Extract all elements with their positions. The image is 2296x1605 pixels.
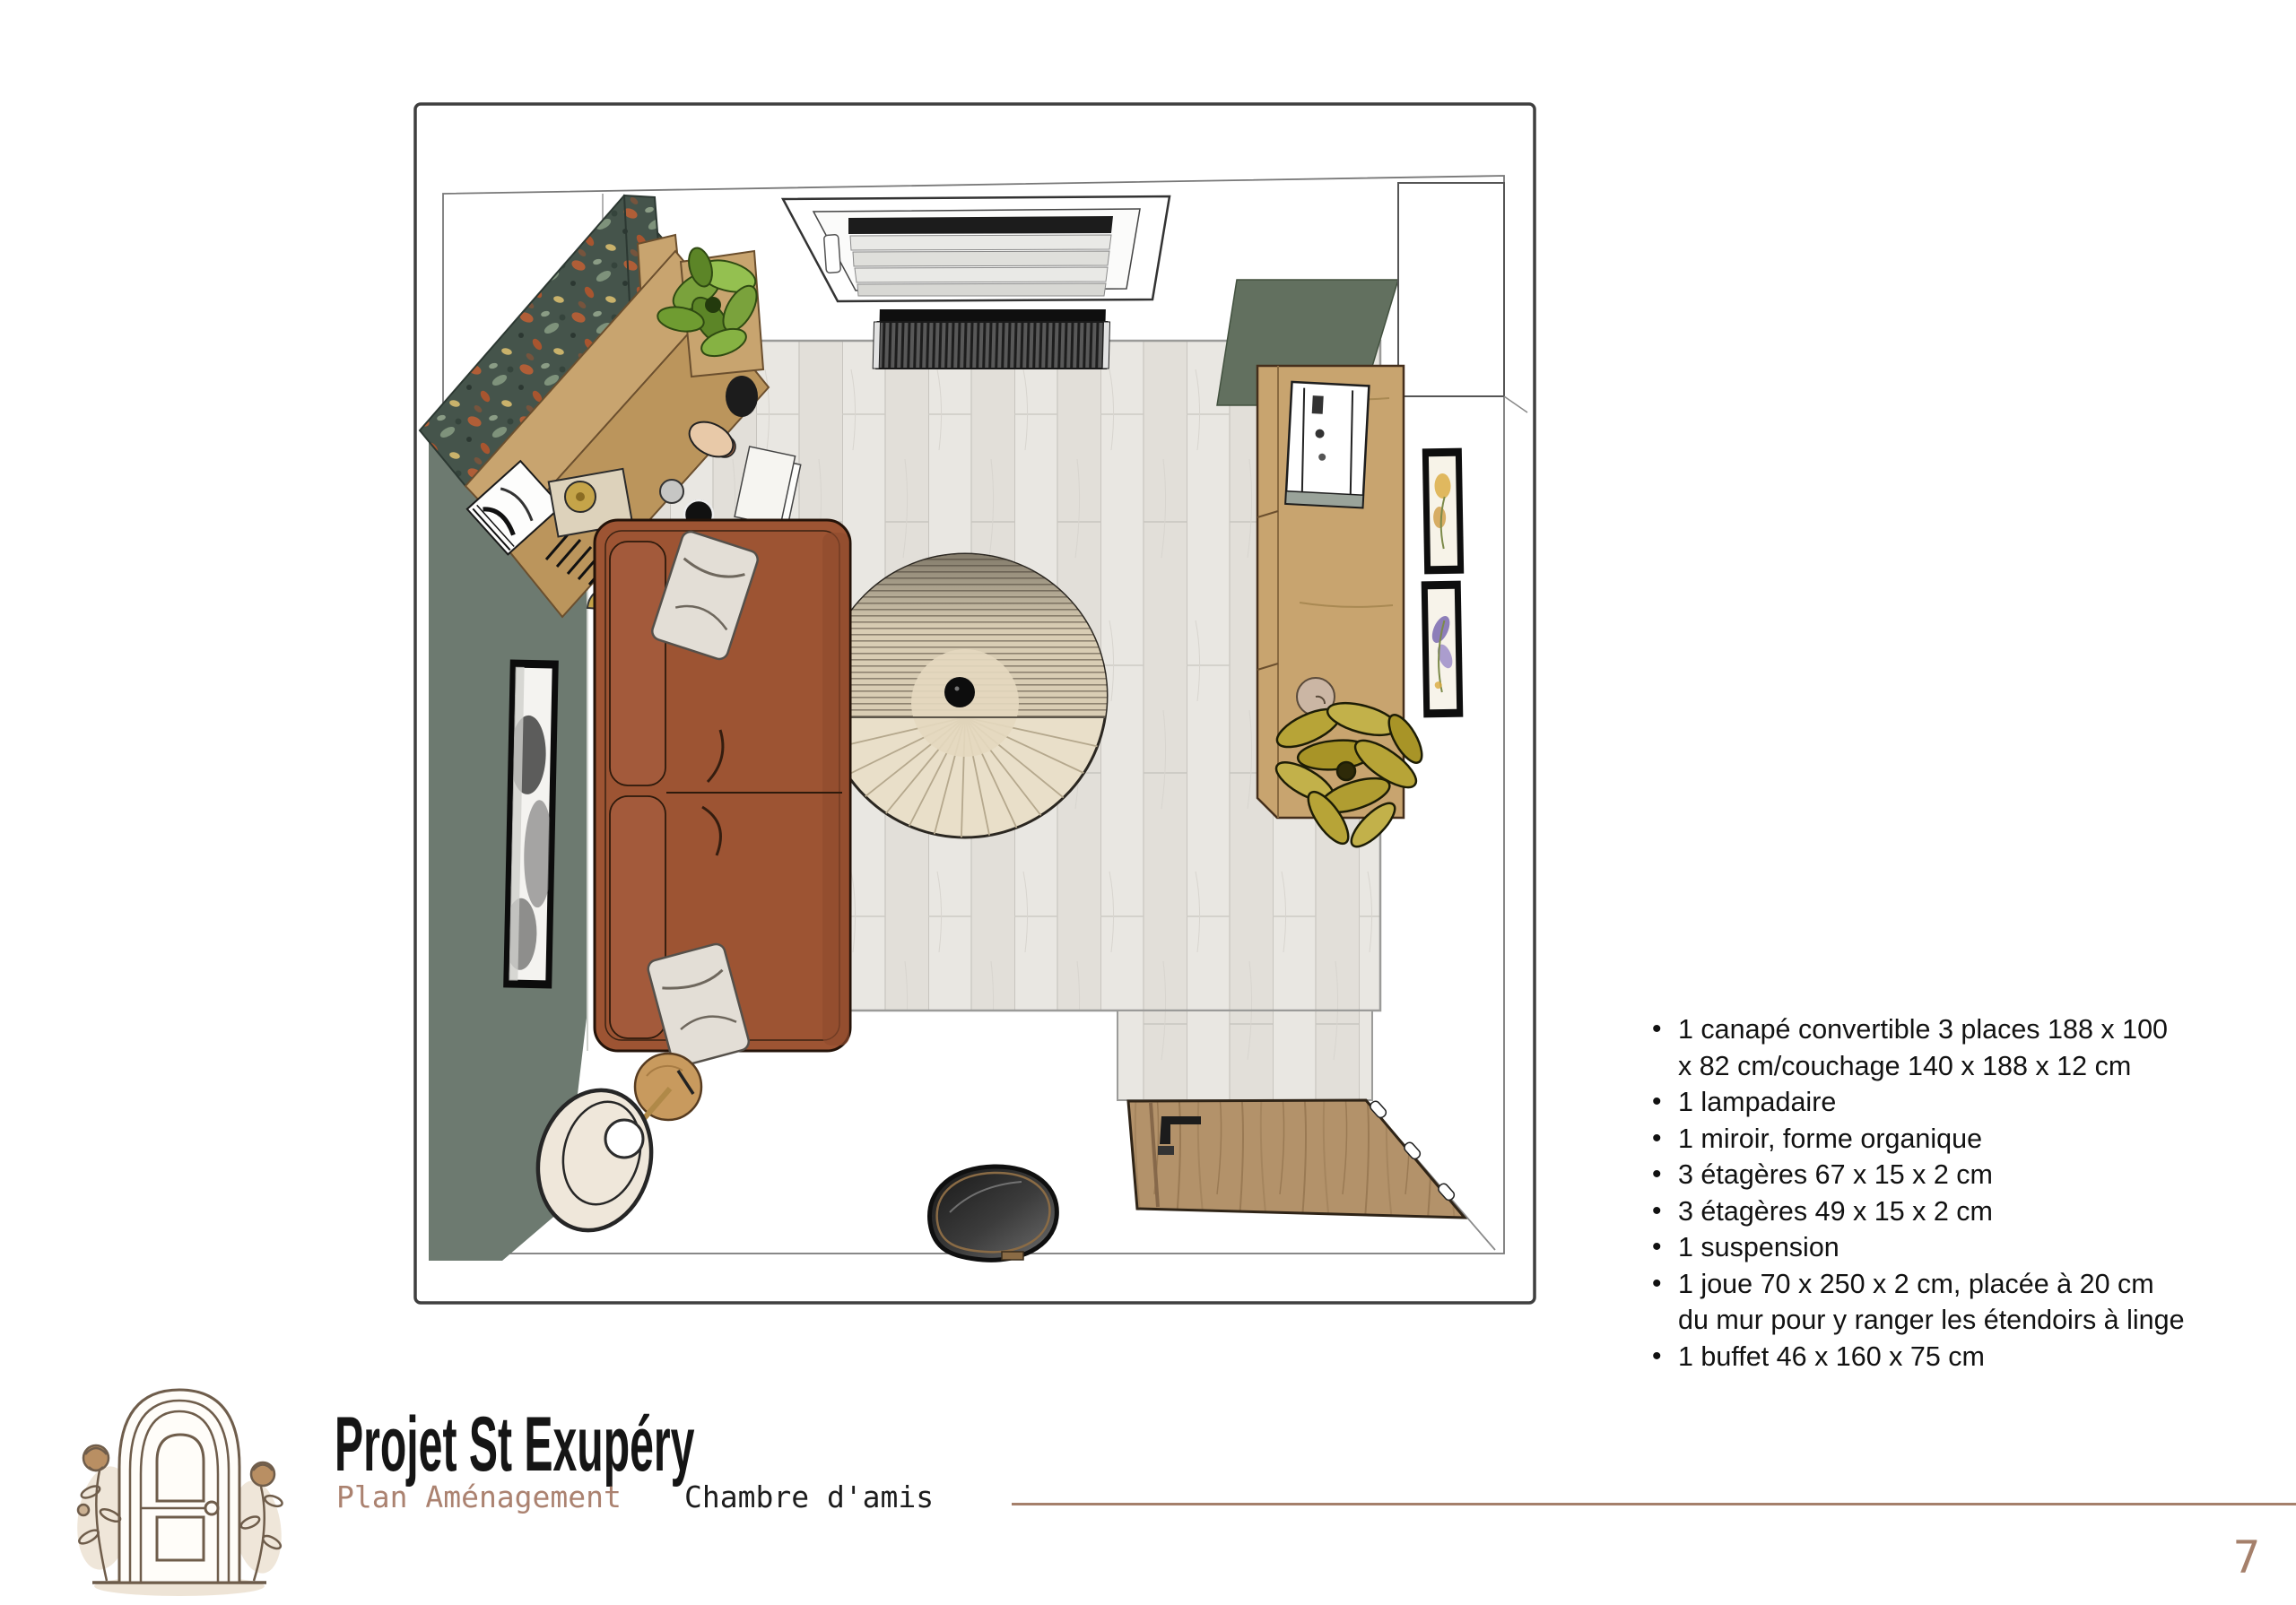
document-type-label: Plan Aménagement — [336, 1479, 622, 1514]
botanical-frame-2 — [1422, 581, 1464, 718]
furniture-list-item: 1 canapé convertible 3 places 188 x 100 … — [1650, 1011, 2188, 1084]
floor-plan-svg — [412, 100, 1538, 1306]
project-title: Projet St Exupéry — [335, 1401, 694, 1489]
organic-mirror — [929, 1167, 1057, 1260]
furniture-list-item: 1 suspension — [1650, 1229, 2188, 1266]
logo-door-icon — [49, 1325, 309, 1603]
floor-plan — [412, 100, 1538, 1306]
side-table — [635, 1054, 701, 1120]
footer-divider-line — [1012, 1503, 2296, 1505]
room-name-label: Chambre d'amis — [684, 1479, 934, 1514]
sofa — [595, 520, 850, 1068]
radiator — [873, 309, 1110, 369]
furniture-list-item: 1 buffet 46 x 160 x 75 cm — [1650, 1339, 2188, 1375]
black-vase — [726, 376, 758, 417]
furniture-list-item: 1 lampadaire — [1650, 1084, 2188, 1121]
buffet-object — [1285, 382, 1369, 508]
gray-vase — [660, 480, 683, 503]
furniture-list-item: 1 joue 70 x 250 x 2 cm, placée à 20 cm d… — [1650, 1266, 2188, 1339]
furniture-list: 1 canapé convertible 3 places 188 x 100 … — [1650, 1011, 2188, 1375]
furniture-list-item: 3 étagères 49 x 15 x 2 cm — [1650, 1193, 2188, 1230]
furniture-list-item: 3 étagères 67 x 15 x 2 cm — [1650, 1157, 2188, 1193]
botanical-frame-1 — [1422, 448, 1464, 575]
sofa-back-cushion — [610, 542, 665, 785]
sofa-blanket — [822, 533, 849, 1045]
page-number: 7 — [2233, 1531, 2260, 1583]
window — [783, 196, 1170, 301]
wall-picture — [503, 659, 559, 988]
buffet — [1257, 366, 1428, 853]
furniture-list-item: 1 miroir, forme organique — [1650, 1121, 2188, 1158]
